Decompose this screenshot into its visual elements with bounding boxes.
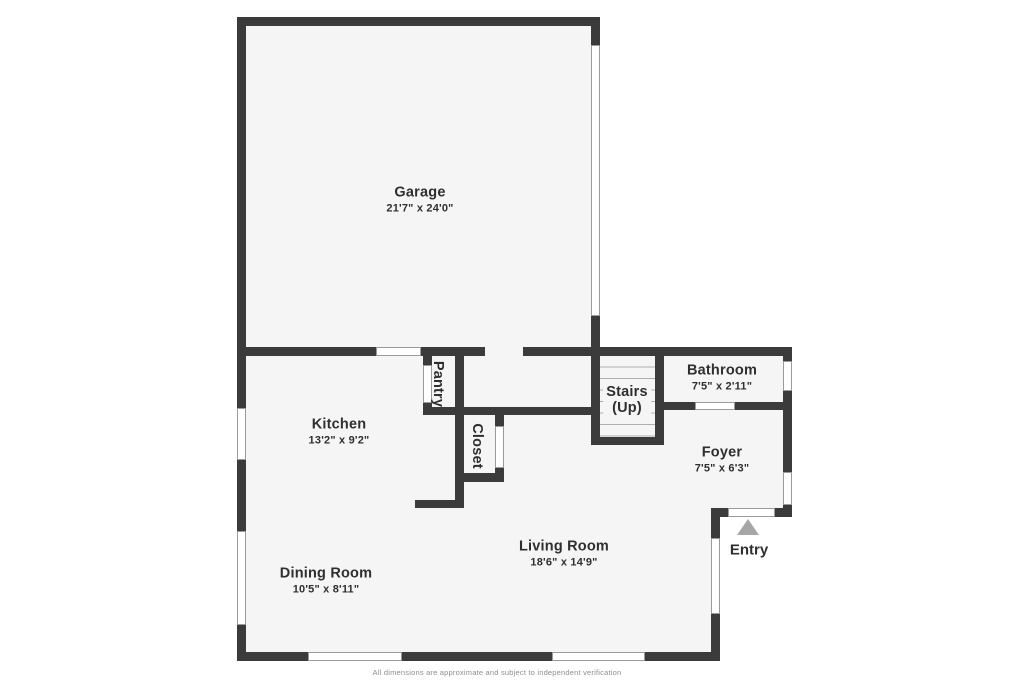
dining-room-label: Dining Room 10'5" x 8'11" [280,566,372,597]
bottom-window-dining [308,652,402,661]
wall-kitchen-bottom [423,407,600,415]
bottom-window-living [552,652,645,661]
living-room-name: Living Room [519,539,609,555]
disclaimer-text: All dimensions are approximate and subje… [0,668,994,677]
dining-room-name: Dining Room [280,566,372,582]
foyer-label: Foyer 7'5" x 6'3" [695,445,750,476]
living-room-dims: 18'6" x 14'9" [519,557,609,569]
kitchen-label: Kitchen 13'2" x 9'2" [309,417,370,448]
foyer-dims: 7'5" x 6'3" [695,463,750,475]
kitchen-left-window [237,408,246,460]
bathroom-door [695,402,735,410]
garage-right-window [591,45,600,316]
wall-kitchen-stub [415,500,464,508]
stairs-direction: (Up) [606,400,648,416]
bathroom-dims: 7'5" x 2'11" [687,381,757,393]
wall-garage-top [237,17,600,26]
garage-kitchen-window [376,347,421,356]
entry-arrow-icon [737,519,759,535]
wall-closet-bottom [455,473,504,482]
closet-label: Closet [469,423,485,469]
pantry-label: Pantry [430,361,446,407]
garage-dims: 21'7" x 24'0" [386,203,453,215]
wall-stairs-right [655,347,664,445]
entry-label: Entry [730,542,768,559]
bathroom-name: Bathroom [687,363,757,379]
entry-door [728,508,775,517]
garage-name: Garage [386,185,453,201]
living-right-window [711,538,720,614]
closet-name: Closet [469,423,485,469]
bathroom-label: Bathroom 7'5" x 2'11" [687,363,757,394]
stairs-name: Stairs [606,384,648,400]
bathroom-right-window [783,361,792,391]
kitchen-name: Kitchen [309,417,370,433]
pantry-name: Pantry [430,361,446,407]
foyer-right-window [783,472,792,505]
dining-left-window [237,531,246,625]
floor-plan: Garage 21'7" x 24'0" Kitchen 13'2" x 9'2… [0,0,1024,683]
stairs-label: Stairs (Up) [603,383,651,417]
wall-mid-west [237,347,376,356]
wall-stairs-bottom [591,437,664,445]
foyer-name: Foyer [695,445,750,461]
garage-label: Garage 21'7" x 24'0" [386,185,453,216]
living-room-label: Living Room 18'6" x 14'9" [519,539,609,570]
dining-room-dims: 10'5" x 8'11" [280,584,372,596]
wall-pantry-closet [455,347,464,508]
kitchen-dims: 13'2" x 9'2" [309,435,370,447]
closet-door [495,426,504,468]
